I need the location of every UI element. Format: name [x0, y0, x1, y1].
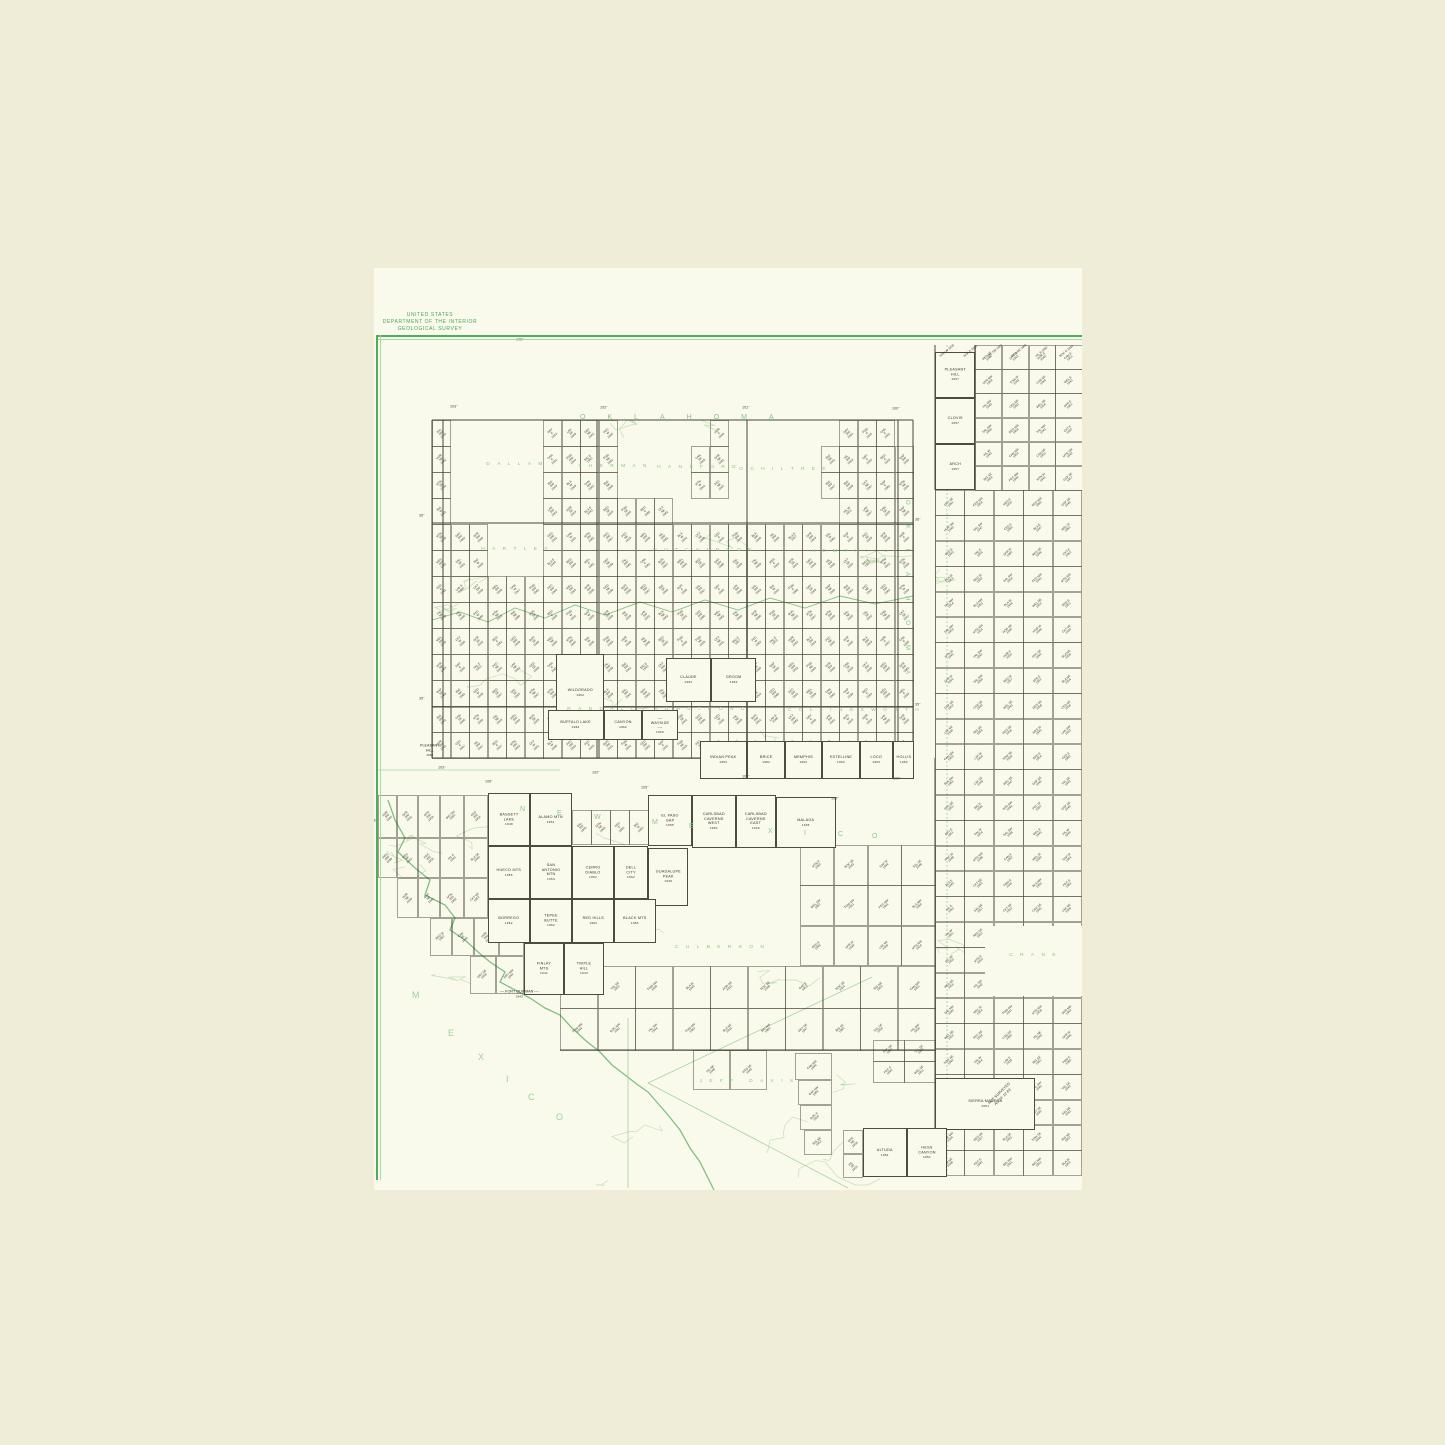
- quad-cell-text: PEC E 1961: [1062, 879, 1073, 890]
- quad-cell-named: TEPEE BUTTE1962: [530, 899, 572, 943]
- quad-cell: CED E 1944: [710, 524, 729, 551]
- quad-cell-text: BLA NE 1954: [1062, 675, 1074, 687]
- quad-cell: RED SE 1946: [1023, 541, 1053, 567]
- quad-cell: MTN W 1942: [876, 550, 895, 577]
- quad-cell: VAL E 1953: [765, 628, 784, 655]
- quad-cell-text: HOR SE 1943: [565, 505, 578, 518]
- quad-cell-text: BLA W 1950: [1062, 1158, 1073, 1169]
- quad-cell-text: HOR E 1949: [713, 427, 726, 440]
- quad-cell: GAP SE 1948: [432, 680, 451, 707]
- state-line-letter: O: [872, 833, 877, 840]
- quad-cell-text: CAN W 1951: [565, 531, 578, 544]
- quad-cell: GAP NE 1952: [935, 693, 965, 719]
- quad-cell: MES E 1943: [765, 550, 784, 577]
- quad-cell-text: CED E 1961: [435, 583, 448, 596]
- quad-cell-text: MTN SE 1954: [435, 479, 448, 492]
- quad-cell-text: BIG W 1956: [583, 635, 596, 648]
- quad-name-label: INDIAN PEAK1954: [710, 756, 736, 765]
- quad-cell-text: SAL SE 1950: [873, 1023, 885, 1035]
- quad-cell-text: LAK NE 1956: [1061, 903, 1073, 915]
- quad-cell-text: HIL SE 1959: [620, 609, 633, 622]
- quad-cell-text: HIL NE 1943: [1032, 1031, 1043, 1042]
- quad-cell-text: HIL NE 1948: [706, 1064, 717, 1075]
- quad-cell: BLA W 1944: [994, 592, 1024, 618]
- quad-cell-text: VAL W 1954: [974, 1056, 985, 1067]
- quad-cell-text: BIG E 1945: [584, 454, 594, 464]
- quad-cell-text: LAK SE 1949: [973, 776, 985, 788]
- quad-cell-text: RED SW 1940: [565, 557, 578, 570]
- quad-cell: HOR E 1947: [876, 628, 895, 655]
- quad-name-label: WILDORADO1962: [567, 689, 592, 698]
- quad-cell-text: GAP SW 1954: [898, 453, 911, 466]
- quad-cell: HIL SW 1948: [765, 524, 784, 551]
- quad-cell: VAL NW 1954: [935, 592, 965, 618]
- quad-cell: GAP E 1953: [785, 966, 823, 1009]
- quad-cell: LAK E 1948: [765, 706, 784, 733]
- quad-cell-text: PEC SW 1946: [546, 583, 559, 596]
- coordinate-label: 35°: [419, 697, 425, 701]
- quad-cell: SAL NW 1954: [432, 420, 451, 447]
- quad-cell-text: SPR SW 1948: [824, 661, 837, 674]
- quad-cell-text: MES NE 1942: [401, 851, 414, 864]
- quad-cell-text: CED SE 1958: [528, 661, 541, 674]
- quad-cell: MTN NE 1953: [488, 602, 507, 629]
- quad-cell-text: CAN SE 1946: [454, 713, 467, 726]
- quad-cell: SPR E 1952: [1023, 668, 1053, 694]
- quad-cell-named: SAN ANTONIO MTN1954: [530, 846, 572, 899]
- quad-cell: MES NW 1952: [784, 654, 803, 681]
- quad-cell-text: CED E 1944: [713, 531, 726, 544]
- quad-cell-text: BIG E 1948: [974, 803, 984, 813]
- quad-cell: CKT NE 1951: [710, 628, 729, 655]
- quad-cell-text: CAN NE 1955: [1036, 448, 1049, 460]
- quad-cell: TOW W 1941: [562, 602, 581, 629]
- quad-cell: CAN NW 1946: [795, 1053, 832, 1080]
- quad-cell: MTN SW 1942: [1055, 442, 1082, 467]
- quad-cell: ROC W 1948: [935, 846, 965, 872]
- quad-name-label: CERRO DIABLO1962: [581, 866, 606, 879]
- quad-cell: LAK NE 1947: [858, 498, 877, 525]
- quad-cell: LAK SE 1948: [562, 420, 581, 447]
- quad-cell: CAN NE 1944: [1029, 369, 1056, 394]
- quad-cell-named: CARLSBAD CAVERNS WEST1954: [692, 795, 736, 848]
- quad-cell-text: CAN E 1951: [879, 427, 892, 440]
- quad-cell: CKT W 1950: [451, 628, 470, 655]
- quad-cell-text: BIG NE 1951: [824, 453, 837, 466]
- quad-cell: DRY NE 1939: [599, 550, 618, 577]
- quad-cell-text: PEC SE 1949: [1032, 649, 1044, 661]
- quad-cell-text: MES NW 1961: [435, 557, 448, 570]
- quad-cell-text: CKT SE 1960: [694, 531, 707, 544]
- quad-cell-text: LAK SW 1953: [1061, 725, 1074, 737]
- quad-cell-text: TOW W 1952: [620, 739, 633, 752]
- quad-cell: DRY SE 1961: [935, 490, 965, 516]
- quad-cell: CED E 1940: [610, 810, 630, 845]
- quad-cell-text: SPR NW 1951: [401, 810, 414, 823]
- quad-name-label: PLEASANT HILL1957: [944, 368, 965, 381]
- quad-cell: WEL SW 1945: [562, 576, 581, 603]
- quad-cell-text: MES W 1940: [1032, 726, 1044, 737]
- quad-cell: ROC SE 1946: [748, 966, 786, 1009]
- quad-cell-text: CKT NE 1943: [973, 878, 985, 890]
- quad-cell: DRY NW 1943: [636, 680, 655, 707]
- quad-cell-text: LAK SW 1941: [824, 713, 837, 726]
- quad-cell-text: SPR NW 1942: [1061, 1005, 1074, 1018]
- quad-cell: CED NW 1958: [506, 628, 525, 655]
- quad-cell-text: ROC W 1948: [944, 853, 956, 865]
- quad-cell-text: VAL E 1955: [473, 662, 483, 672]
- state-line-letter: E: [689, 823, 694, 830]
- quad-cell: BLA W 1950: [1053, 1150, 1082, 1176]
- quad-cell-text: BLA W 1940: [686, 982, 697, 993]
- quad-cell-text: BLA SE 1961: [1003, 1132, 1015, 1144]
- quad-cell: HIL SW 1943: [839, 446, 858, 473]
- quad-cell-text: SPR NE 1958: [846, 1135, 859, 1148]
- quad-cell: BIG SE 1960: [823, 1008, 861, 1051]
- quad-cell-text: PEC E 1940: [974, 1158, 985, 1169]
- quad-cell-text: BIG NE 1961: [454, 687, 467, 700]
- quad-cell-text: BIG NE 1950: [873, 982, 885, 993]
- quad-cell-named: LOCO1960: [860, 741, 893, 779]
- quad-cell: BIG NW 1942: [839, 576, 858, 603]
- quad-cell-text: LAK W 1950: [974, 751, 985, 762]
- coordinate-label: 35°: [915, 703, 921, 707]
- quad-cell-named: SIERRA MADERA1951: [935, 1078, 1035, 1130]
- quad-cell: BIG SE 1956: [975, 466, 1002, 491]
- quad-cell-text: SPR NW 1958: [982, 375, 995, 388]
- quad-cell-text: CED NW 1939: [694, 713, 707, 726]
- map-frame-line: [376, 335, 1082, 337]
- quad-cell-text: GAP E 1944: [842, 531, 855, 544]
- quad-cell: MTN W 1942: [691, 472, 710, 499]
- quad-cell-text: SPR E 1951: [1063, 400, 1074, 411]
- quad-cell: BLA NW 1960: [901, 885, 935, 926]
- quad-cell: GAP E 1944: [839, 524, 858, 551]
- quad-cell-text: CED NW 1960: [694, 609, 707, 622]
- quad-cell-text: WEL W 1961: [1062, 523, 1074, 534]
- quad-cell: RED E 1955: [1053, 592, 1082, 618]
- quad-cell: DRY SW 1962: [451, 524, 470, 551]
- quad-name-label: LOCO1960: [871, 756, 883, 765]
- quad-cell-text: HOR NE 1942: [435, 453, 448, 466]
- quad-cell: RED E 1954: [1023, 744, 1053, 770]
- quad-name-label: CANYON1962: [614, 721, 631, 730]
- quad-cell: TOW SE 1951: [673, 602, 692, 629]
- quad-cell: BIG E 1957: [728, 628, 747, 655]
- quad-cell: VAL NE 1949: [747, 550, 766, 577]
- quad-cell: VAL SE 1960: [904, 1040, 936, 1062]
- quad-cell-text: MTN NW 1954: [912, 940, 925, 953]
- quad-cell: RED SE 1945: [654, 628, 673, 655]
- quad-cell: HIL NE 1943: [1023, 1023, 1053, 1049]
- quad-cell: HOR NE 1942: [432, 446, 451, 473]
- quad-cell-text: TOW SW 1958: [647, 981, 661, 994]
- quad-cell: BIG NW 1961: [432, 706, 451, 733]
- quad-cell-text: CAN NE 1959: [879, 609, 892, 622]
- quad-cell-text: RED NW 1958: [1009, 424, 1022, 437]
- quad-name-label: CARLSBAD CAVERNS WEST1954: [703, 813, 725, 831]
- quad-cell: CAN W 1947: [506, 576, 525, 603]
- quad-cell: HOR NE 1959: [397, 878, 418, 918]
- county-label: O C H I L T R E E: [739, 467, 829, 472]
- quad-cell-text: HIL SE 1953: [846, 1159, 859, 1172]
- quad-cell-text: LAK SW 1946: [731, 583, 744, 596]
- quad-cell: ROC NW 1961: [598, 1008, 636, 1051]
- quad-cell-text: GAP NE 1945: [1032, 776, 1045, 788]
- quad-cell: LAK SW 1953: [1053, 719, 1082, 745]
- quad-cell-text: ROC E 1956: [676, 583, 689, 596]
- quad-cell-text: BIG E 1959: [862, 558, 872, 568]
- quad-cell: VAL SW 1942: [964, 642, 994, 668]
- quad-cell: CED NE 1939: [599, 576, 618, 603]
- quad-cell-text: RED E 1943: [944, 548, 955, 559]
- quad-cell: BLA NE 1958: [1053, 642, 1082, 668]
- quad-cell-text: HIL NW 1943: [983, 400, 995, 412]
- quad-cell: BIG SW 1950: [440, 795, 464, 838]
- quad-cell-text: SAL NW 1942: [944, 1005, 957, 1017]
- quad-cell: PEC SW 1946: [543, 576, 562, 603]
- quad-cell: CKT SW 1959: [469, 576, 488, 603]
- quad-cell: PEC W 1945: [599, 420, 618, 447]
- quad-cell-text: RED E 1948: [812, 941, 823, 952]
- quad-cell-text: CKT NW 1962: [787, 713, 800, 726]
- quad-cell-text: SPR NE 1943: [435, 661, 448, 674]
- quad-cell: MTN SE 1943: [730, 1050, 767, 1090]
- quad-cell: TOW SW 1947: [994, 998, 1024, 1024]
- quad-cell-text: LAK E 1960: [455, 584, 466, 594]
- quad-cell: MES W 1940: [1023, 719, 1053, 745]
- quad-cell: VAL SE 1943: [1053, 1074, 1082, 1100]
- quad-cell-text: HOR W 1959: [620, 635, 633, 648]
- quad-cell: ROC SE 1943: [834, 845, 868, 886]
- quad-cell-named: GROOM1962: [711, 658, 756, 702]
- quad-cell-text: GAP SE 1954: [768, 661, 781, 674]
- quad-cell: BIG NE 1960: [506, 602, 525, 629]
- quad-cell: SPR NW 1959: [876, 524, 895, 551]
- quad-cell: BIG W 1952: [765, 576, 784, 603]
- quad-cell-text: WEL NE 1962: [713, 609, 726, 622]
- quad-cell: GAP SW 1956: [798, 1080, 832, 1105]
- quad-cell: CED E 1947: [451, 732, 470, 759]
- quad-cell: TOW E 1960: [784, 576, 803, 603]
- quad-cell-text: GAP SW 1956: [808, 1086, 821, 1099]
- quad-cell-text: MES NW 1949: [879, 687, 892, 700]
- quad-cell-named: GUADALUPE PEAK1939: [648, 848, 688, 906]
- quad-cell: ROC E 1950: [800, 1105, 832, 1130]
- quad-cell: WEL E 1941: [1055, 369, 1082, 394]
- quad-cell-named: ALTUDA1951: [863, 1128, 907, 1177]
- quad-cell: SPR SW 1946: [994, 795, 1024, 821]
- quad-cell: TOW NE 1949: [935, 1049, 965, 1075]
- quad-cell: HIL SE 1955: [935, 947, 965, 973]
- quad-cell-named: HOLLIS1962: [893, 741, 914, 779]
- quad-cell: CED NW 1941: [1023, 566, 1053, 592]
- quad-cell: MTN NW 1948: [964, 846, 994, 872]
- quad-cell-text: CED E 1940: [613, 821, 626, 834]
- quad-cell: HOR SE 1943: [562, 498, 581, 525]
- quad-cell-text: VAL SE 1943: [1062, 1081, 1074, 1092]
- quad-cell-text: DRY E 1946: [713, 583, 726, 596]
- quad-cell-text: CAN NW 1942: [583, 479, 596, 492]
- quad-cell-named: ESTELLINE1962: [822, 741, 860, 779]
- quad-cell: BLA W 1953: [935, 566, 965, 592]
- coordinate-label: 102°: [592, 771, 600, 775]
- quad-cell: TOW SW 1959: [599, 628, 618, 655]
- quad-cell-text: SPR W 1960: [1003, 548, 1015, 559]
- quad-cell: MTN NW 1962: [440, 878, 464, 918]
- county-label: H E M P H I L L: [812, 549, 891, 554]
- quad-cell-text: BIG E 1943: [640, 662, 650, 672]
- quad-cell-text: CKT NE 1961: [657, 505, 670, 518]
- quad-cell: DRY SE 1947: [785, 1008, 823, 1051]
- quad-cell-text: PEC SW 1947: [602, 531, 615, 544]
- quad-cell-text: GAP E 1961: [879, 479, 892, 492]
- quad-cell-text: BIG W 1961: [435, 505, 448, 518]
- quad-cell-text: SAL NW 1954: [435, 427, 448, 440]
- quad-cell-text: CAN W 1947: [509, 583, 522, 596]
- quad-cell: DRY E 1955: [451, 654, 470, 681]
- unmapped-area: [985, 926, 1082, 996]
- quad-cell-text: CED W 1956: [713, 713, 726, 726]
- quad-cell: BIG SW 1943: [543, 472, 562, 499]
- quad-cell-text: WEL E 1962: [583, 557, 596, 570]
- quad-cell: CED W 1958: [469, 680, 488, 707]
- quad-cell: HOR SW 1952: [784, 628, 803, 655]
- quad-cell: HIL SW 1956: [821, 550, 840, 577]
- quad-cell: CKT SW 1956: [858, 654, 877, 681]
- quad-cell-text: CKT SE 1952: [1003, 903, 1015, 915]
- quad-cell: CAN NW 1955: [898, 966, 936, 1009]
- quad-cell-named: CERRO DIABLO1962: [572, 846, 614, 899]
- quad-cell: SAL SE 1946: [901, 845, 935, 886]
- quad-cell-text: VAL SW 1942: [973, 649, 985, 661]
- quad-cell-text: HOR SW 1942: [943, 522, 956, 535]
- quad-cell-text: BLA NE 1958: [1062, 649, 1074, 661]
- quad-cell-text: CED NW 1941: [1031, 573, 1044, 586]
- quad-cell-text: RED W 1957: [1003, 675, 1015, 686]
- quad-cell-named: CLOVIS1957: [935, 398, 975, 444]
- quad-cell-text: PEC NW 1946: [1009, 472, 1022, 485]
- quad-cell-text: BLA E 1943: [945, 879, 955, 889]
- quad-name-label: BUFFALO LAKE1962: [561, 721, 591, 730]
- quad-cell-text: VAL E 1953: [769, 636, 779, 646]
- quad-name-label: GUADALUPE PEAK1939: [655, 870, 680, 883]
- quad-cell-named: BLACK MTS1954: [614, 899, 656, 943]
- quad-cell-text: MES NW 1952: [787, 661, 800, 674]
- quad-cell-text: TOW NE 1958: [694, 635, 707, 648]
- quad-cell-text: VAL NW 1954: [944, 598, 957, 610]
- quad-cell: BIG W 1956: [580, 628, 599, 655]
- quad-cell-text: CED E 1947: [454, 739, 467, 752]
- quad-cell: VAL SE 1942: [858, 602, 877, 629]
- quad-cell-text: MTN W 1940: [944, 650, 956, 661]
- quad-cell: SAL SE 1941: [451, 550, 470, 577]
- quad-cell-named: CANYON1962: [604, 710, 642, 740]
- quad-cell-text: TOW W 1941: [565, 609, 578, 622]
- quad-cell: RED E 1944: [858, 680, 877, 707]
- quad-cell: MTN SE 1956: [432, 524, 451, 551]
- quad-cell-text: DRY E 1951: [944, 828, 955, 839]
- quad-cell-text: CAN NE 1960: [1002, 1030, 1015, 1042]
- quad-cell: MTN E 1962: [800, 845, 834, 886]
- quad-cell-text: HIL NE 1940: [454, 609, 467, 622]
- quad-cell-text: HOR NE 1959: [401, 891, 414, 904]
- quad-cell: DRY NE 1958: [470, 956, 496, 994]
- quad-cell: SPR NW 1959: [418, 795, 440, 838]
- quad-name-label: WAYSIDE1960: [649, 716, 670, 734]
- quad-cell-text: RED NW 1960: [1031, 497, 1044, 510]
- quad-cell-text: BLA W 1944: [1003, 599, 1014, 610]
- quad-cell-text: HIL W 1943: [983, 449, 993, 459]
- map-line: [833, 1075, 856, 1093]
- quad-cell-text: BIG SW 1947: [824, 479, 837, 492]
- quad-cell-text: RED E 1962: [491, 635, 504, 648]
- coordinate-label: 36°: [915, 518, 921, 522]
- quad-cell: TOW NE 1944: [802, 654, 821, 681]
- quad-cell-text: HIL E 1961: [945, 905, 955, 915]
- mexico-letter: E: [448, 1028, 455, 1038]
- quad-cell-text: LAK SE 1948: [565, 427, 578, 440]
- quad-cell-text: LAK E 1939: [1003, 1057, 1014, 1067]
- quad-cell: MTN NW 1942: [506, 732, 525, 759]
- quad-cell: SAL SW 1954: [994, 566, 1024, 592]
- quad-cell: WEL NW 1954: [673, 550, 692, 577]
- quad-cell: MES NW 1949: [876, 680, 895, 707]
- quad-cell: SAL SW 1941: [617, 680, 636, 707]
- quad-cell-text: ROC W 1943: [842, 713, 855, 726]
- quad-cell-text: SPR SE 1952: [472, 635, 485, 648]
- quad-cell-named: FINLAY MTS1941: [524, 943, 564, 995]
- county-label: H U T C H I N S O N: [653, 548, 754, 553]
- quad-cell-text: GAP NE 1940: [1061, 802, 1074, 814]
- quad-cell-text: CAN SE 1945: [1032, 903, 1045, 915]
- quad-cell: SPR W 1960: [994, 541, 1024, 567]
- quad-cell-text: MTN W 1942: [879, 557, 892, 570]
- quad-cell-text: BLA E 1941: [584, 506, 594, 516]
- quad-cell-text: CAN SE 1940: [973, 700, 986, 712]
- quad-cell-text: BLA W 1948: [565, 479, 578, 492]
- quad-cell: BLA E 1941: [580, 498, 599, 525]
- quad-cell-text: DRY NW 1960: [713, 557, 726, 570]
- quad-cell-text: GAP SE 1957: [1063, 472, 1075, 484]
- quad-cell: SAL NW 1960: [975, 418, 1002, 443]
- quad-cell-text: PEC NE 1945: [491, 661, 504, 674]
- quad-cell: VAL SW 1944: [635, 1008, 673, 1051]
- quad-cell: GAP NE 1945: [1023, 769, 1053, 795]
- quad-cell-text: PEC NW 1959: [422, 851, 436, 865]
- quad-cell: RED W 1942: [964, 566, 994, 592]
- quad-cell-text: CED E 1960: [1003, 523, 1014, 534]
- quad-cell: VAL NE 1943: [488, 706, 507, 733]
- quad-cell-text: HIL NW 1961: [657, 531, 670, 544]
- quad-cell-text: SPR NE 1960: [750, 609, 763, 622]
- quad-cell-text: CAN NW 1946: [807, 1060, 820, 1073]
- quad-cell: MTN SW 1962: [580, 524, 599, 551]
- quad-cell: SAL NW 1960: [964, 668, 994, 694]
- quad-cell: GAP E 1961: [876, 472, 895, 499]
- quad-cell: HOR E 1949: [710, 420, 729, 447]
- quad-cell: BLA W 1940: [673, 966, 711, 1009]
- quad-cell-text: SAL SW 1947: [694, 583, 707, 596]
- quad-cell-text: TOW W 1943: [1009, 376, 1021, 388]
- quad-cell-text: BLA E 1944: [547, 558, 557, 568]
- quad-cell: CKT E 1955: [1055, 418, 1082, 443]
- quad-cell: HIL NW 1961: [654, 524, 673, 551]
- quad-cell: SPR W 1956: [935, 668, 965, 694]
- quad-cell-named: BORREGO1962: [488, 899, 530, 943]
- quad-cell: PEC E 1940: [964, 1150, 994, 1176]
- quad-cell-text: TOW SE 1948: [768, 609, 781, 622]
